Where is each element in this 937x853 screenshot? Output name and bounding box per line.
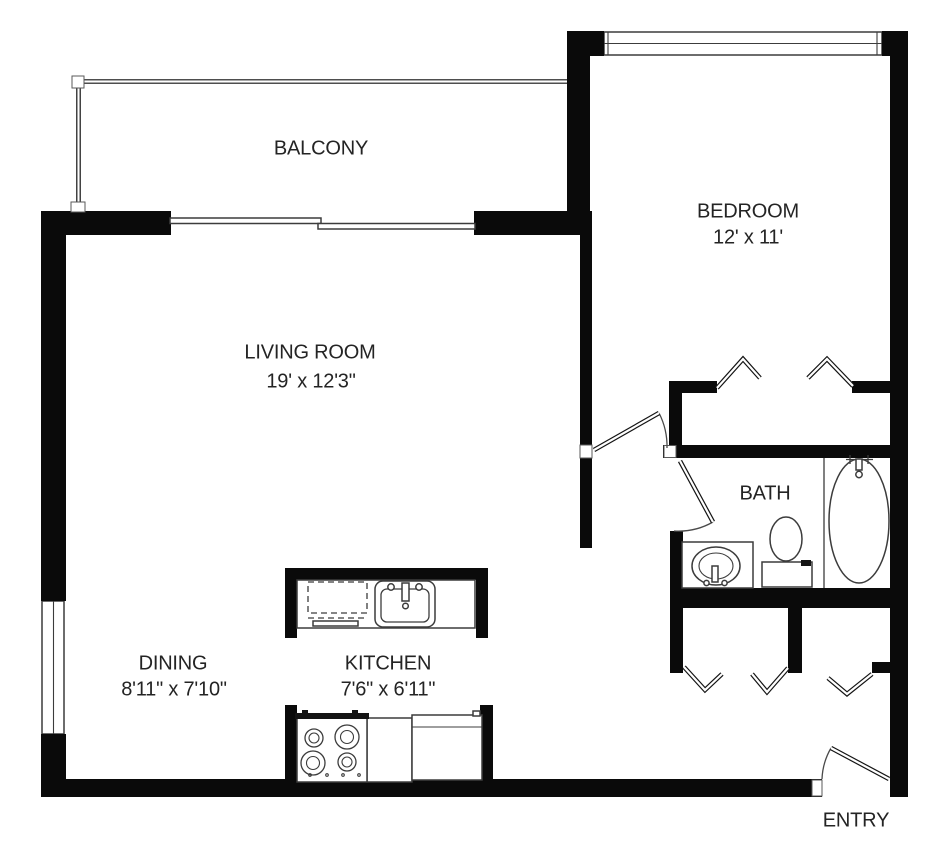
kitchen-dims: 7'6" x 6'11" [341,679,436,702]
bedroom-dims: 12' x 11' [713,227,783,250]
toilet [762,517,812,587]
bath-door [674,461,713,531]
living-room-dims: 19' x 12'3" [266,371,355,394]
bedroom-closet-bifold-doors [717,359,853,388]
living-room-window [42,601,64,734]
kitchen-sink [375,581,435,627]
kitchen-label: KITCHEN [345,653,431,676]
dining-label: DINING [139,653,208,676]
kitchen-counter-bottom [367,718,412,782]
floor-plan-drawing [0,0,937,853]
entry-door [822,748,889,779]
floor-plan: BALCONY LIVING ROOM 19' x 12'3" BEDROOM … [0,0,937,853]
bath-label: BATH [739,483,790,506]
bedroom-window [604,32,882,55]
living-room-label: LIVING ROOM [244,342,375,365]
vanity-sink [682,542,753,588]
hall-closet-bifold-doors [684,667,872,694]
dining-dims: 8'11" x 7'10" [121,679,227,702]
stove [295,710,369,782]
balcony-label: BALCONY [274,138,368,161]
refrigerator [412,711,482,780]
bathtub [829,455,889,583]
bedroom-label: BEDROOM [697,201,799,224]
bedroom-door [594,413,667,450]
entry-label: ENTRY [823,810,889,833]
sliding-glass-door [170,218,475,229]
